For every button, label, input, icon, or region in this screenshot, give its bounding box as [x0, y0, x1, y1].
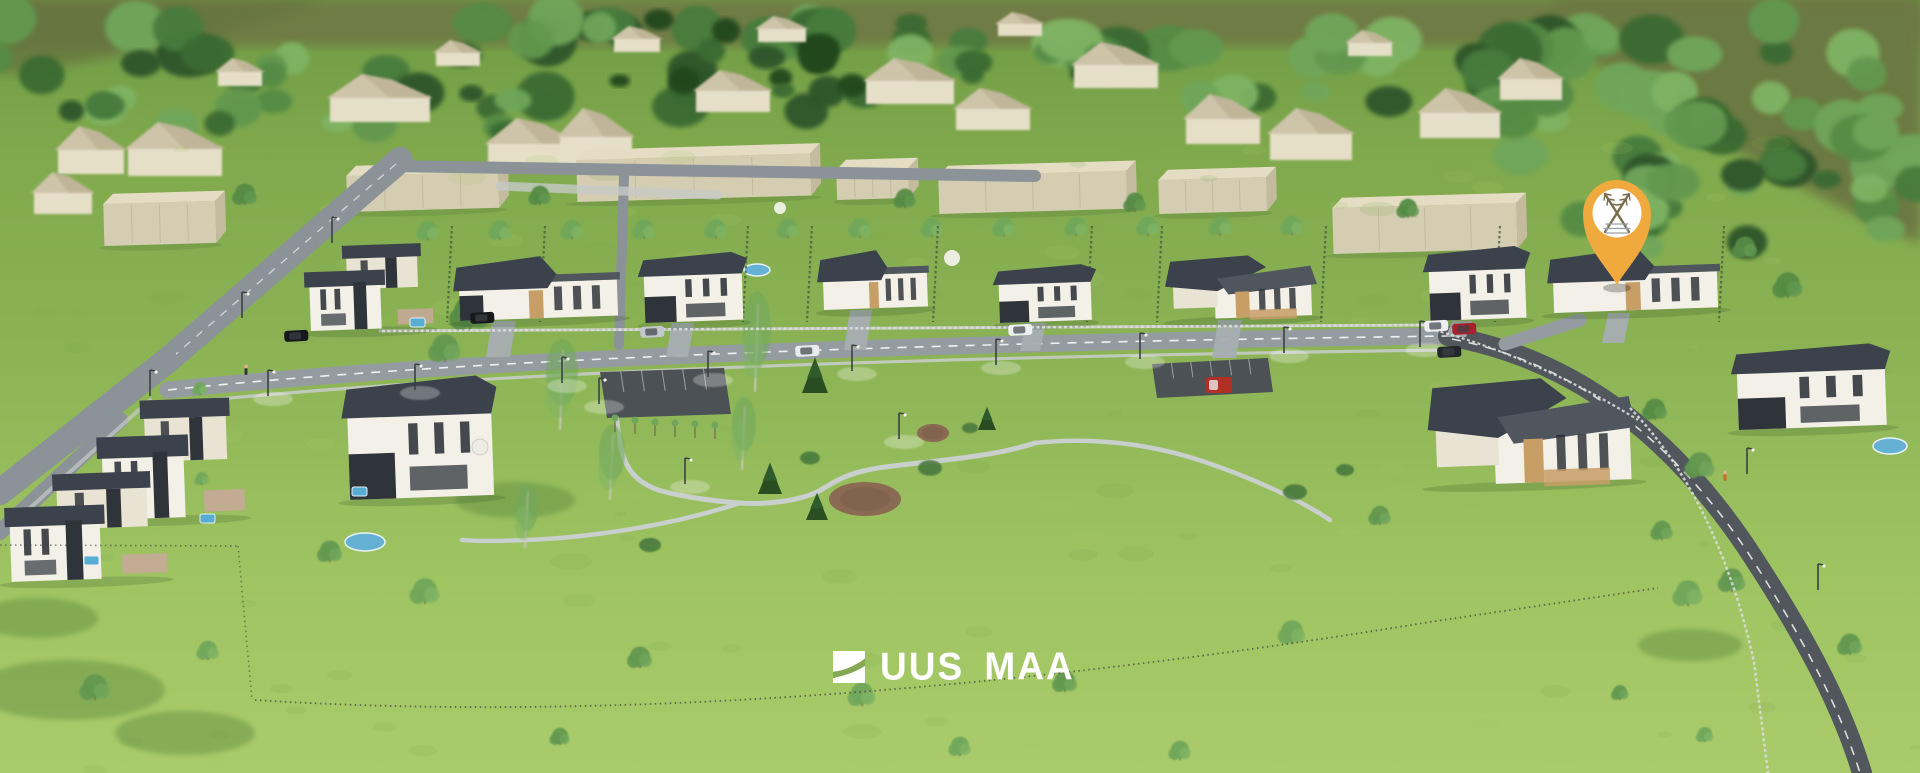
- bush: [1283, 484, 1307, 500]
- parasol: [944, 250, 960, 266]
- car: [1008, 324, 1033, 336]
- garden-table: [472, 439, 488, 455]
- bush: [1336, 464, 1354, 476]
- car: [1424, 320, 1449, 332]
- bush: [800, 452, 820, 465]
- house-two-story: [1420, 245, 1534, 329]
- person: [1723, 471, 1727, 481]
- bush: [962, 423, 978, 433]
- uus-maa-logo: UUS MAA: [833, 648, 1075, 685]
- location-pin-marker: [1566, 168, 1668, 294]
- pool: [352, 487, 367, 496]
- apartment-block: [1153, 167, 1278, 220]
- house-two-story: [635, 251, 751, 331]
- pool: [84, 556, 99, 565]
- truck: [1206, 377, 1232, 393]
- pond: [345, 533, 385, 551]
- aerial-render: UUS MAA: [0, 0, 1920, 773]
- person: [244, 365, 248, 375]
- house-two-story: [991, 264, 1100, 332]
- car: [1437, 346, 1462, 358]
- pool: [200, 514, 215, 523]
- pond: [744, 264, 770, 276]
- bush: [639, 538, 661, 552]
- bush: [918, 460, 942, 476]
- house-two-story: [1724, 342, 1899, 438]
- logo-text: UUS MAA: [880, 647, 1075, 685]
- car: [470, 312, 495, 324]
- car: [795, 345, 820, 357]
- car: [1452, 323, 1477, 335]
- parasol: [774, 202, 786, 214]
- apartment-block: [97, 191, 226, 253]
- pool: [410, 318, 425, 327]
- car: [284, 330, 309, 342]
- pond: [1873, 438, 1907, 454]
- uus-maa-flag-icon: [833, 651, 865, 683]
- car: [640, 326, 665, 338]
